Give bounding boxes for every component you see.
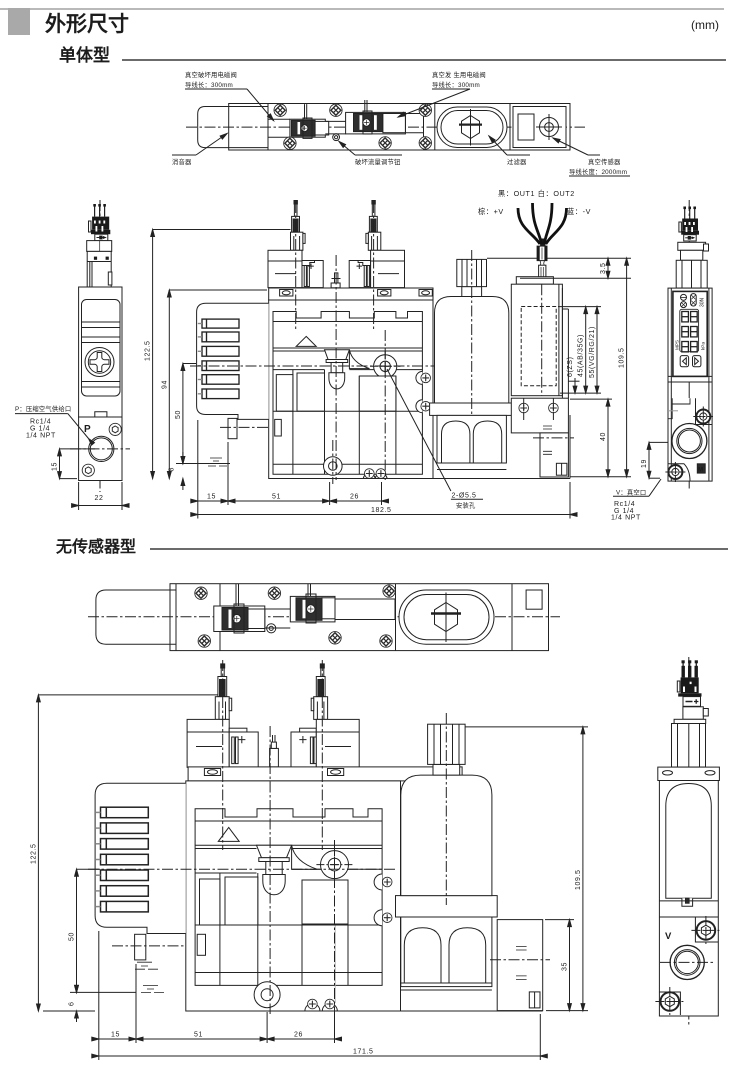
svg-text:15: 15 xyxy=(111,1032,120,1039)
svg-text:109.5: 109.5 xyxy=(575,869,582,890)
svg-text:50: 50 xyxy=(69,932,76,941)
svg-text:26: 26 xyxy=(294,1032,303,1039)
svg-text:导线长：300mm: 导线长：300mm xyxy=(185,80,233,89)
svg-text:15: 15 xyxy=(207,494,216,501)
svg-text:过滤器: 过滤器 xyxy=(507,157,527,166)
svg-text:无传感器型: 无传感器型 xyxy=(55,537,136,556)
svg-text:171.5: 171.5 xyxy=(353,1049,374,1056)
svg-text:40: 40 xyxy=(600,432,607,441)
svg-text:P: P xyxy=(84,424,91,435)
svg-text:45(AB/35G): 45(AB/35G) xyxy=(578,334,585,377)
svg-text:kPa: kPa xyxy=(701,342,706,350)
svg-text:1/4 NPT: 1/4 NPT xyxy=(26,433,56,440)
svg-text:真空破坏用电磁阀: 真空破坏用电磁阀 xyxy=(185,70,237,79)
svg-text:V: V xyxy=(665,931,672,942)
svg-text:2-Ø5.5: 2-Ø5.5 xyxy=(452,493,477,500)
svg-text:MPS: MPS xyxy=(675,340,680,350)
svg-text:35: 35 xyxy=(562,962,569,971)
svg-text:19: 19 xyxy=(641,459,648,468)
svg-text:破坏流量调节钮: 破坏流量调节钮 xyxy=(355,157,401,166)
svg-text:V：真空口: V：真空口 xyxy=(616,488,646,497)
svg-text:P：压缩空气供给口: P：压缩空气供给口 xyxy=(15,404,71,413)
svg-text:30N: 30N xyxy=(700,297,706,307)
svg-text:安装孔: 安装孔 xyxy=(456,501,476,510)
svg-text:8: 8 xyxy=(169,467,176,472)
svg-text:蓝：-V: 蓝：-V xyxy=(567,207,591,216)
svg-text:外形尺寸: 外形尺寸 xyxy=(45,12,129,36)
svg-text:(mm): (mm) xyxy=(691,18,719,32)
svg-text:122.5: 122.5 xyxy=(145,340,152,361)
svg-text:真空发 生用电磁阀: 真空发 生用电磁阀 xyxy=(432,70,486,79)
svg-text:6: 6 xyxy=(69,1002,76,1007)
svg-text:Rc1/4: Rc1/4 xyxy=(30,419,51,426)
svg-text:黑：OUT1 白：OUT2: 黑：OUT1 白：OUT2 xyxy=(498,189,575,198)
svg-text:消音器: 消音器 xyxy=(172,157,192,166)
svg-text:1/4 NPT: 1/4 NPT xyxy=(611,515,641,522)
svg-text:单体型: 单体型 xyxy=(59,45,110,65)
svg-text:94: 94 xyxy=(161,380,168,389)
svg-text:51: 51 xyxy=(272,494,281,501)
svg-text:M: M xyxy=(698,467,703,474)
svg-text:122.5: 122.5 xyxy=(30,843,37,864)
svg-text:109.5: 109.5 xyxy=(619,347,626,368)
svg-text:3.5: 3.5 xyxy=(600,262,607,274)
svg-text:导线长度：2000mm: 导线长度：2000mm xyxy=(569,167,627,176)
svg-text:棕：+V: 棕：+V xyxy=(478,207,504,216)
svg-text:50: 50 xyxy=(175,410,182,419)
svg-text:导线长：300mm: 导线长：300mm xyxy=(432,80,480,89)
svg-text:26: 26 xyxy=(350,494,359,501)
svg-text:G 1/4: G 1/4 xyxy=(30,426,50,433)
svg-text:51: 51 xyxy=(194,1032,203,1039)
svg-text:6(ZS): 6(ZS) xyxy=(567,357,574,378)
svg-text:15: 15 xyxy=(52,462,59,471)
svg-text:真空传感器: 真空传感器 xyxy=(588,157,621,166)
svg-text:55(VG/RG/21): 55(VG/RG/21) xyxy=(589,326,596,378)
svg-text:182.5: 182.5 xyxy=(371,507,392,514)
svg-text:22: 22 xyxy=(95,495,104,502)
